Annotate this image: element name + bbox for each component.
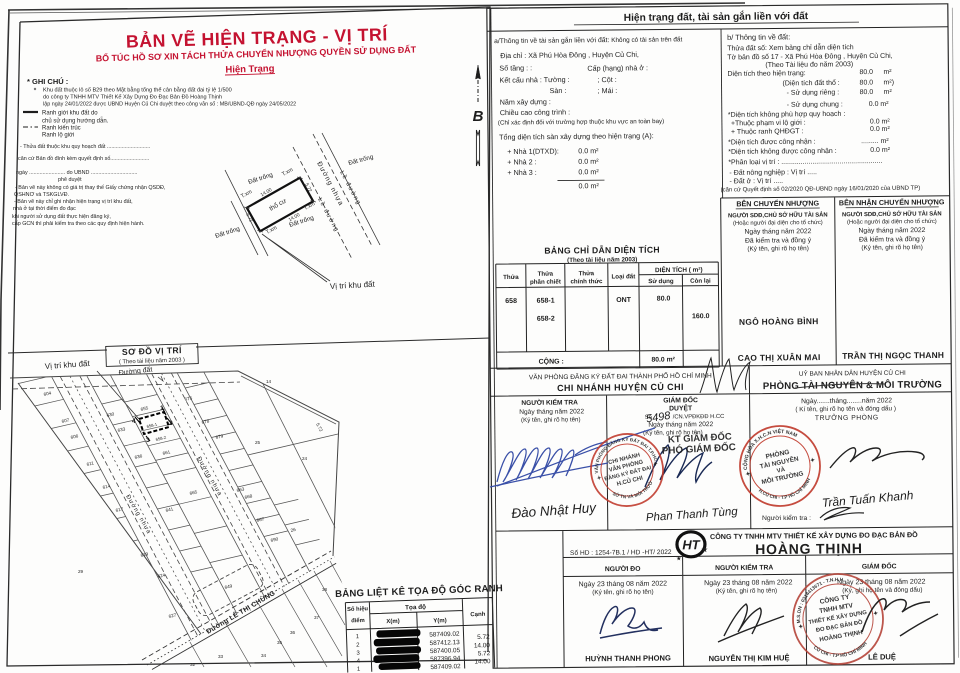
svg-text:24: 24 <box>302 456 308 461</box>
svg-text:(Hoặc người đại diện cho tổ ch: (Hoặc người đại diện cho tổ chức) <box>733 219 823 227</box>
svg-text:(Ký tên, ghi rõ họ tên): (Ký tên, ghi rõ họ tên) <box>861 244 923 252</box>
svg-text:(Ký tên, ghi rõ họ tên): (Ký tên, ghi rõ họ tên) <box>747 245 809 253</box>
svg-text:chủ sử dụng hướng dẫn.: chủ sử dụng hướng dẫn. <box>42 118 109 125</box>
svg-text:587409.02: 587409.02 <box>430 663 461 671</box>
svg-text:*Diện tích không phù hợp quy h: *Diện tích không phù hợp quy hoạch : <box>728 111 846 119</box>
svg-text:Loại đất: Loại đất <box>611 273 635 280</box>
svg-text:5.72: 5.72 <box>477 634 490 641</box>
svg-text:+ Nhà 1(DTXD):: + Nhà 1(DTXD): <box>507 147 559 156</box>
svg-text:ONT: ONT <box>616 297 632 304</box>
svg-text:5.72: 5.72 <box>478 650 491 657</box>
svg-text:khi người sử dụng đất thực hiệ: khi người sử dụng đất thực hiện đăng ký, <box>12 213 111 220</box>
svg-text:- Bản vẽ này không có giá trị: - Bản vẽ này không có giá trị thay thế G… <box>15 185 166 191</box>
svg-text:587409.02: 587409.02 <box>429 631 460 639</box>
svg-text:- Thửa đất thuộc khu quy hoạch: - Thửa đất thuộc khu quy hoạch đất .....… <box>20 143 150 150</box>
svg-text:0.0 m²: 0.0 m² <box>578 146 599 155</box>
svg-text:34: 34 <box>261 653 267 658</box>
svg-text:DIỆN TÍCH ( m²): DIỆN TÍCH ( m²) <box>655 265 703 274</box>
svg-text:do công ty TNHH MTV Thiết Kế X: do công ty TNHH MTV Thiết Kế Xây Dựng Đo… <box>43 95 222 101</box>
svg-text:Ranh kiến trúc: Ranh kiến trúc <box>42 126 81 132</box>
svg-text:nhà ở tại thời điểm đo đạc: nhà ở tại thời điểm đo đạc <box>13 205 76 212</box>
svg-text:37: 37 <box>314 615 320 620</box>
svg-text:Diện tích theo hiện trạng:: Diện tích theo hiện trạng: <box>727 70 805 78</box>
svg-text:Ngày.......tháng........năm 20: Ngày.......tháng........năm 2022 <box>801 397 892 405</box>
svg-text:NGƯỜI ĐO: NGƯỜI ĐO <box>605 564 641 573</box>
svg-text:HUỲNH THANH PHONG: HUỲNH THANH PHONG <box>585 653 671 663</box>
svg-text:0.0 m²: 0.0 m² <box>870 147 891 154</box>
svg-text:/CN.VPĐKĐĐ H.CC: /CN.VPĐKĐĐ H.CC <box>673 414 725 420</box>
svg-text:35: 35 <box>277 640 283 645</box>
svg-text:Ngày 23 tháng 08 năm 2022: Ngày 23 tháng 08 năm 2022 <box>837 579 926 587</box>
svg-text:Chiều cao công trình :: Chiều cao công trình : <box>500 107 570 117</box>
svg-text:Thửa: Thửa <box>538 271 554 278</box>
svg-text:+ Nhà 3 :: + Nhà 3 : <box>507 168 536 177</box>
svg-text:Sàn :: Sàn : <box>550 86 567 95</box>
svg-text:m²): m²) <box>884 79 895 86</box>
svg-text:DUYỆT: DUYỆT <box>669 403 693 412</box>
svg-text:1: 1 <box>160 405 164 412</box>
svg-text:LÊ DUỆ: LÊ DUỆ <box>868 652 896 661</box>
svg-text:BẢNG CHỈ DẪN DIỆN TÍCH: BẢNG CHỈ DẪN DIỆN TÍCH <box>544 244 660 256</box>
svg-text:658: 658 <box>505 298 517 305</box>
svg-text:587400.05: 587400.05 <box>430 647 461 655</box>
svg-text:Y(m): Y(m) <box>433 618 447 624</box>
svg-text:m²: m² <box>884 89 893 96</box>
svg-text:......... m²: ......... m² <box>861 138 889 145</box>
svg-text:0.0 m²: 0.0 m² <box>869 101 890 108</box>
svg-text:lập ngày 24/01/2022 được UBND: lập ngày 24/01/2022 được UBND Huyện Củ C… <box>43 101 296 108</box>
svg-text:Số hiệu: Số hiệu <box>347 605 369 613</box>
svg-text:★: ★ <box>676 555 681 562</box>
svg-text:*Diện tích không được công nhậ: *Diện tích không được công nhận : <box>728 148 837 156</box>
svg-text:0.0 m²: 0.0 m² <box>870 126 891 133</box>
svg-text:căn cứ Bản đồ đính kèm quyết đ: căn cứ Bản đồ đính kèm quyết định số....… <box>18 156 149 162</box>
svg-text:NGUYỄN THỊ KIM HUỆ: NGUYỄN THỊ KIM HUỆ <box>709 653 790 663</box>
svg-text:29: 29 <box>78 569 84 574</box>
svg-text:0.0 m²: 0.0 m² <box>578 181 599 190</box>
svg-text:- Sử dụng riêng :: - Sử dụng riêng : <box>787 88 840 97</box>
svg-text:0.0 m²: 0.0 m² <box>870 118 891 125</box>
svg-text:587412.13: 587412.13 <box>429 639 460 647</box>
svg-text:0.0 m²: 0.0 m² <box>578 157 599 166</box>
svg-text:658-2: 658-2 <box>537 316 555 323</box>
svg-text:Số tầng : :: Số tầng : : <box>499 63 532 72</box>
svg-text:X(m): X(m) <box>386 619 400 625</box>
svg-text:B: B <box>473 108 484 125</box>
svg-text:14.00: 14.00 <box>474 642 491 650</box>
svg-text:32: 32 <box>190 662 196 667</box>
svg-text:HOÀNG THỊNH: HOÀNG THỊNH <box>755 540 863 557</box>
svg-text:- Bản vẽ này chỉ ghi nhận hiện: - Bản vẽ này chỉ ghi nhận hiện trạng vị … <box>14 198 133 205</box>
svg-text:Ngày 23 tháng 08 năm 2022: Ngày 23 tháng 08 năm 2022 <box>704 579 793 587</box>
svg-text:Ngày tháng năm 2022: Ngày tháng năm 2022 <box>744 228 811 236</box>
svg-text:Năm xây dựng :: Năm xây dựng : <box>500 97 551 106</box>
svg-text:Ngày tháng năm 2022: Ngày tháng năm 2022 <box>519 408 584 416</box>
svg-text:80.0: 80.0 <box>860 80 874 87</box>
svg-text:33: 33 <box>218 654 224 659</box>
svg-text:Còn lại: Còn lại <box>690 278 711 285</box>
svg-text:80.0: 80.0 <box>859 69 873 76</box>
svg-text:*Diện tích được công nhận :: *Diện tích được công nhận : <box>728 139 816 147</box>
svg-text:36: 36 <box>290 630 296 635</box>
svg-text:80.0 m²: 80.0 m² <box>651 356 675 363</box>
svg-text:80.0: 80.0 <box>860 89 874 96</box>
svg-text:cấp GCN thì phải kiểm tra theo: cấp GCN thì phải kiểm tra theo các quy đ… <box>12 220 144 227</box>
svg-text:160.0: 160.0 <box>692 313 710 320</box>
svg-text:3: 3 <box>146 437 150 444</box>
svg-text:Ngày 23 tháng 08 năm 2022: Ngày 23 tháng 08 năm 2022 <box>579 581 668 589</box>
svg-text:Ranh lộ giới: Ranh lộ giới <box>42 133 74 139</box>
svg-text:14: 14 <box>266 379 272 384</box>
svg-text:(Ký tên, ghi rõ họ tên): (Ký tên, ghi rõ họ tên) <box>521 416 581 424</box>
svg-text:Người kiểm tra :: Người kiểm tra : <box>762 514 811 522</box>
svg-text:Cấp (hạng) nhà ở :: Cấp (hạng) nhà ở : <box>587 63 648 73</box>
svg-text:CHI NHÁNH HUYỆN CỦ CHI: CHI NHÁNH HUYỆN CỦ CHI <box>557 381 684 393</box>
svg-text:587396.94: 587396.94 <box>430 655 461 663</box>
svg-text:Cạnh: Cạnh <box>470 612 486 619</box>
svg-text:m²: m² <box>883 69 892 76</box>
svg-text:chính thức: chính thức <box>570 278 603 285</box>
svg-text:+Thuộc phạm vi lộ giới :: +Thuộc phạm vi lộ giới : <box>731 120 806 128</box>
svg-text:CÔNG TY TNHH MTV THIẾT KẾ XÂY: CÔNG TY TNHH MTV THIẾT KẾ XÂY DỰNG ĐO ĐẠ… <box>710 529 918 541</box>
svg-text:0.0 m²: 0.0 m² <box>578 167 599 176</box>
svg-text:*Phân loại vị trí : .........: *Phân loại vị trí : ....................… <box>728 158 882 166</box>
svg-text:PHÒNG TÀI NGUYÊN & MÔI TRƯỜNG: PHÒNG TÀI NGUYÊN & MÔI TRƯỜNG <box>763 378 942 392</box>
svg-text:HT: HT <box>682 537 701 552</box>
svg-text:Thửa: Thửa <box>579 270 595 277</box>
svg-text:38: 38 <box>322 587 328 592</box>
svg-text:điểm: điểm <box>351 617 365 624</box>
svg-text:4: 4 <box>132 418 136 425</box>
svg-text:Khu đất thuộc lô số B29 theo M: Khu đất thuộc lô số B29 theo Mặt bằng tổ… <box>43 87 232 94</box>
svg-text:(Ký tên, ghi rõ họ tên): (Ký tên, ghi rõ họ tên) <box>592 589 654 597</box>
svg-text:QSHNƠ và TSKGLVĐ.: QSHNƠ và TSKGLVĐ. <box>14 192 69 198</box>
svg-text:80.0: 80.0 <box>657 295 671 302</box>
svg-text:BÊN CHUYỂN NHƯỢNG: BÊN CHUYỂN NHƯỢNG <box>736 199 819 209</box>
svg-text:b/ Thông tin về đất:: b/ Thông tin về đất: <box>727 32 790 42</box>
svg-text:Ngày tháng năm 2022: Ngày tháng năm 2022 <box>858 227 925 235</box>
svg-text:phê duyệt: phê duyệt <box>58 177 82 183</box>
svg-text:Ranh giới khu đất do: Ranh giới khu đất do <box>42 111 98 117</box>
svg-text:phân chiết: phân chiết <box>530 279 561 286</box>
svg-text:Ngày tháng năm 2022: Ngày tháng năm 2022 <box>648 421 713 429</box>
svg-text:Tổng diện tích sàn xây dựng th: Tổng diện tích sàn xây dựng theo hiện tr… <box>499 131 654 141</box>
svg-text:★: ★ <box>701 545 708 554</box>
svg-text:+ Nhà 2 :: + Nhà 2 : <box>507 157 536 166</box>
svg-text:NGÔ HOÀNG BÌNH: NGÔ HOÀNG BÌNH <box>739 315 819 327</box>
svg-text:BÊN NHẬN CHUYỂN NHƯỢNG: BÊN NHẬN CHUYỂN NHƯỢNG <box>839 197 945 207</box>
svg-text:CAO THỊ XUÂN MAI: CAO THỊ XUÂN MAI <box>738 351 821 363</box>
svg-text:; Mái :: ; Mái : <box>598 86 618 95</box>
svg-text:658-1: 658-1 <box>537 298 555 305</box>
svg-text:CỘNG :: CỘNG : <box>539 357 564 366</box>
svg-text:2: 2 <box>169 420 173 427</box>
svg-text:- Sử dụng chung :: - Sử dụng chung : <box>787 100 843 109</box>
svg-text:14.00: 14.00 <box>474 658 491 666</box>
svg-text:(Theo Tài liệu đo năm 2003): (Theo Tài liệu đo năm 2003) <box>765 61 853 69</box>
svg-text:Kết cấu nhà : Tường :: Kết cấu nhà : Tường : <box>499 75 569 85</box>
svg-text:SƠ ĐỒ VỊ TRÍ: SƠ ĐỒ VỊ TRÍ <box>122 344 182 357</box>
svg-text:* GHI CHÚ :: * GHI CHÚ : <box>27 77 68 86</box>
svg-text:(Hoặc người đại diện cho tổ ch: (Hoặc người đại diện cho tổ chức) <box>847 218 937 226</box>
svg-text:Tọa độ: Tọa độ <box>405 604 426 612</box>
svg-text:; Cột :: ; Cột : <box>597 75 616 84</box>
svg-text:TRẦN THỊ NGỌC THANH: TRẦN THỊ NGỌC THANH <box>842 350 944 361</box>
svg-text:Thửa: Thửa <box>503 274 519 281</box>
svg-text:(Ký tên, ghi rõ họ tên): (Ký tên, ghi rõ họ tên) <box>716 587 778 595</box>
svg-text:Địa chỉ : Xã Phú Hòa Đông , Hu: Địa chỉ : Xã Phú Hòa Đông , Huyện Củ Chi… <box>500 50 639 60</box>
svg-text:+ Thuộc ranh QHĐGT :: + Thuộc ranh QHĐGT : <box>731 128 803 136</box>
svg-text:Sử dụng: Sử dụng <box>648 278 674 285</box>
svg-text:25: 25 <box>255 440 261 445</box>
svg-text:ngày ........................: ngày ........................ do UBND ..… <box>16 170 137 176</box>
